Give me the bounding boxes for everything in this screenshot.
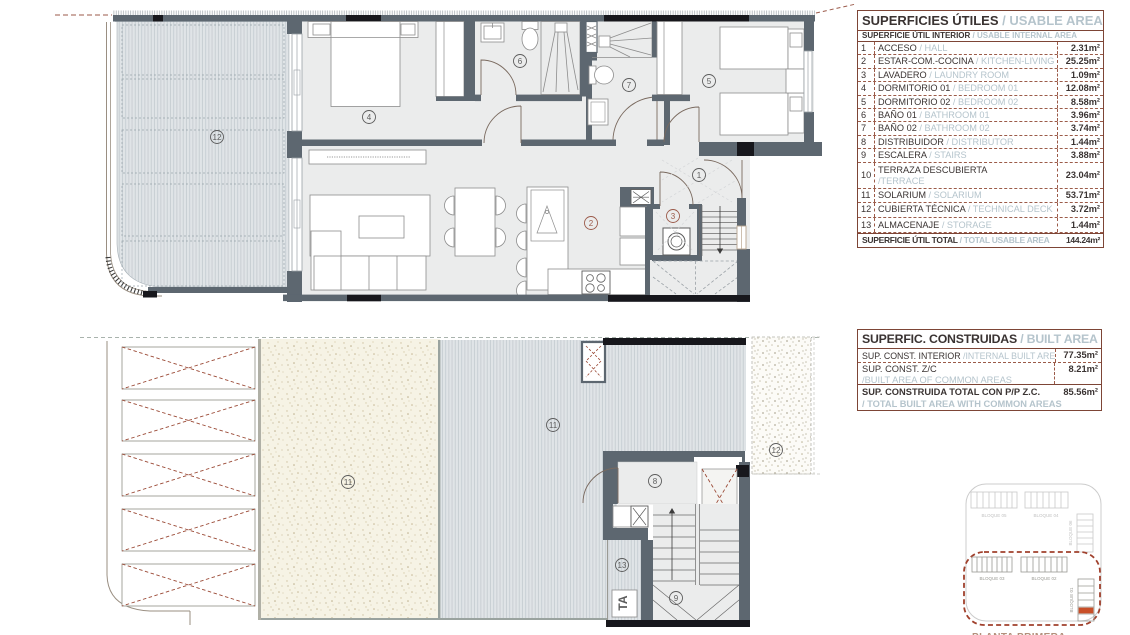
svg-text:6: 6: [518, 57, 523, 66]
svg-text:BLOQUE 04: BLOQUE 04: [1033, 513, 1059, 518]
svg-text:2: 2: [589, 219, 594, 228]
svg-text:3: 3: [671, 212, 676, 221]
svg-text:12: 12: [772, 446, 781, 455]
svg-text:1: 1: [697, 171, 702, 180]
svg-text:BLOQUE 06: BLOQUE 06: [1068, 520, 1073, 546]
svg-text:7: 7: [627, 81, 632, 90]
svg-text:BLOQUE 05: BLOQUE 05: [981, 513, 1007, 518]
svg-text:BLOQUE 01: BLOQUE 01: [1069, 587, 1074, 613]
svg-text:8: 8: [653, 477, 658, 486]
svg-text:4: 4: [367, 113, 372, 122]
svg-text:BLOQUE 02: BLOQUE 02: [1031, 576, 1057, 581]
svg-text:BLOQUE 03: BLOQUE 03: [979, 576, 1005, 581]
svg-text:11: 11: [549, 421, 558, 430]
svg-text:13: 13: [618, 561, 627, 570]
svg-text:TA: TA: [616, 595, 630, 610]
svg-text:9: 9: [674, 594, 679, 603]
svg-text:12: 12: [213, 133, 222, 142]
svg-text:5: 5: [707, 77, 712, 86]
svg-text:11: 11: [344, 478, 353, 487]
